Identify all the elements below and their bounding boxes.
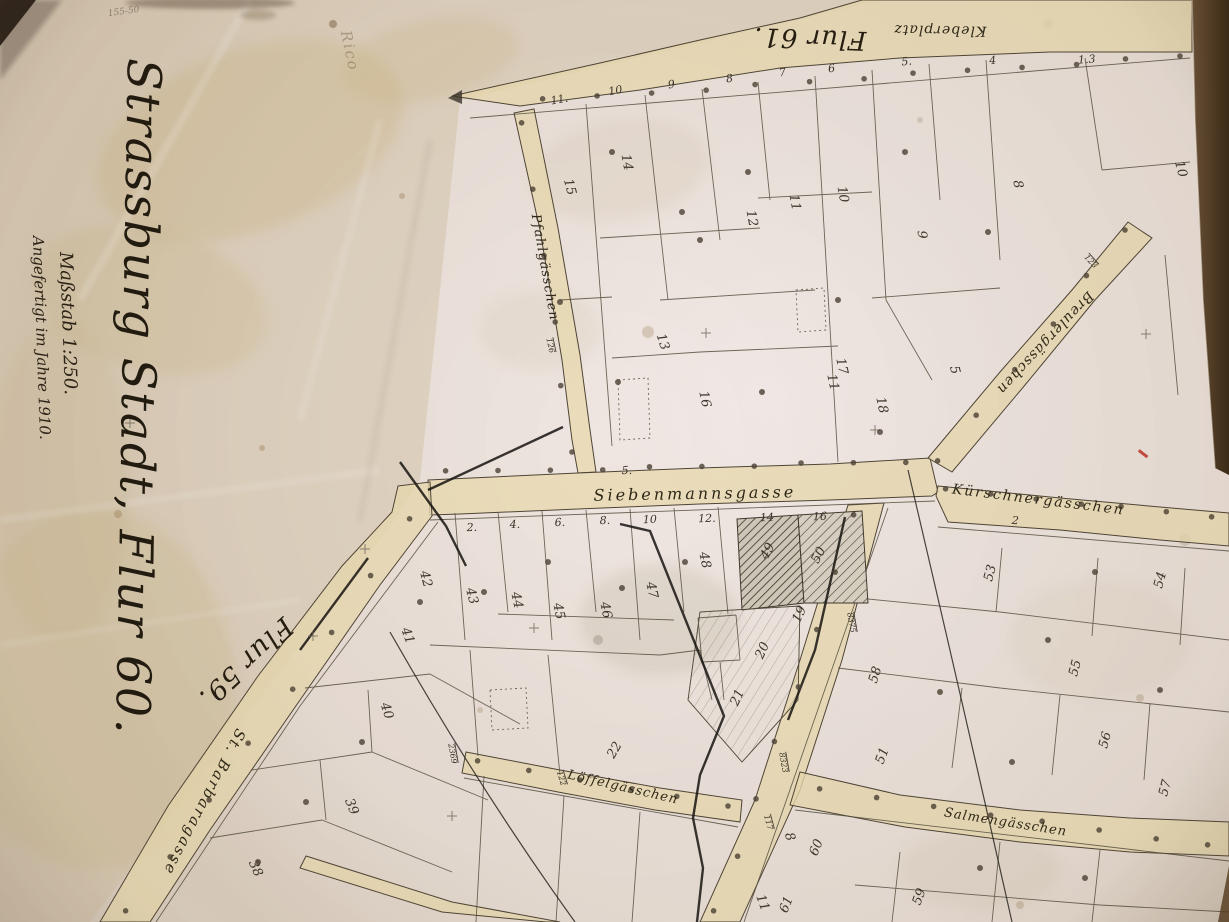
photo-edges bbox=[0, 0, 1229, 922]
cadastral-map-scan: Strassburg Stadt, Flur 60.Maßstab 1:250.… bbox=[0, 0, 1229, 922]
map-canvas: Strassburg Stadt, Flur 60.Maßstab 1:250.… bbox=[0, 0, 1229, 922]
